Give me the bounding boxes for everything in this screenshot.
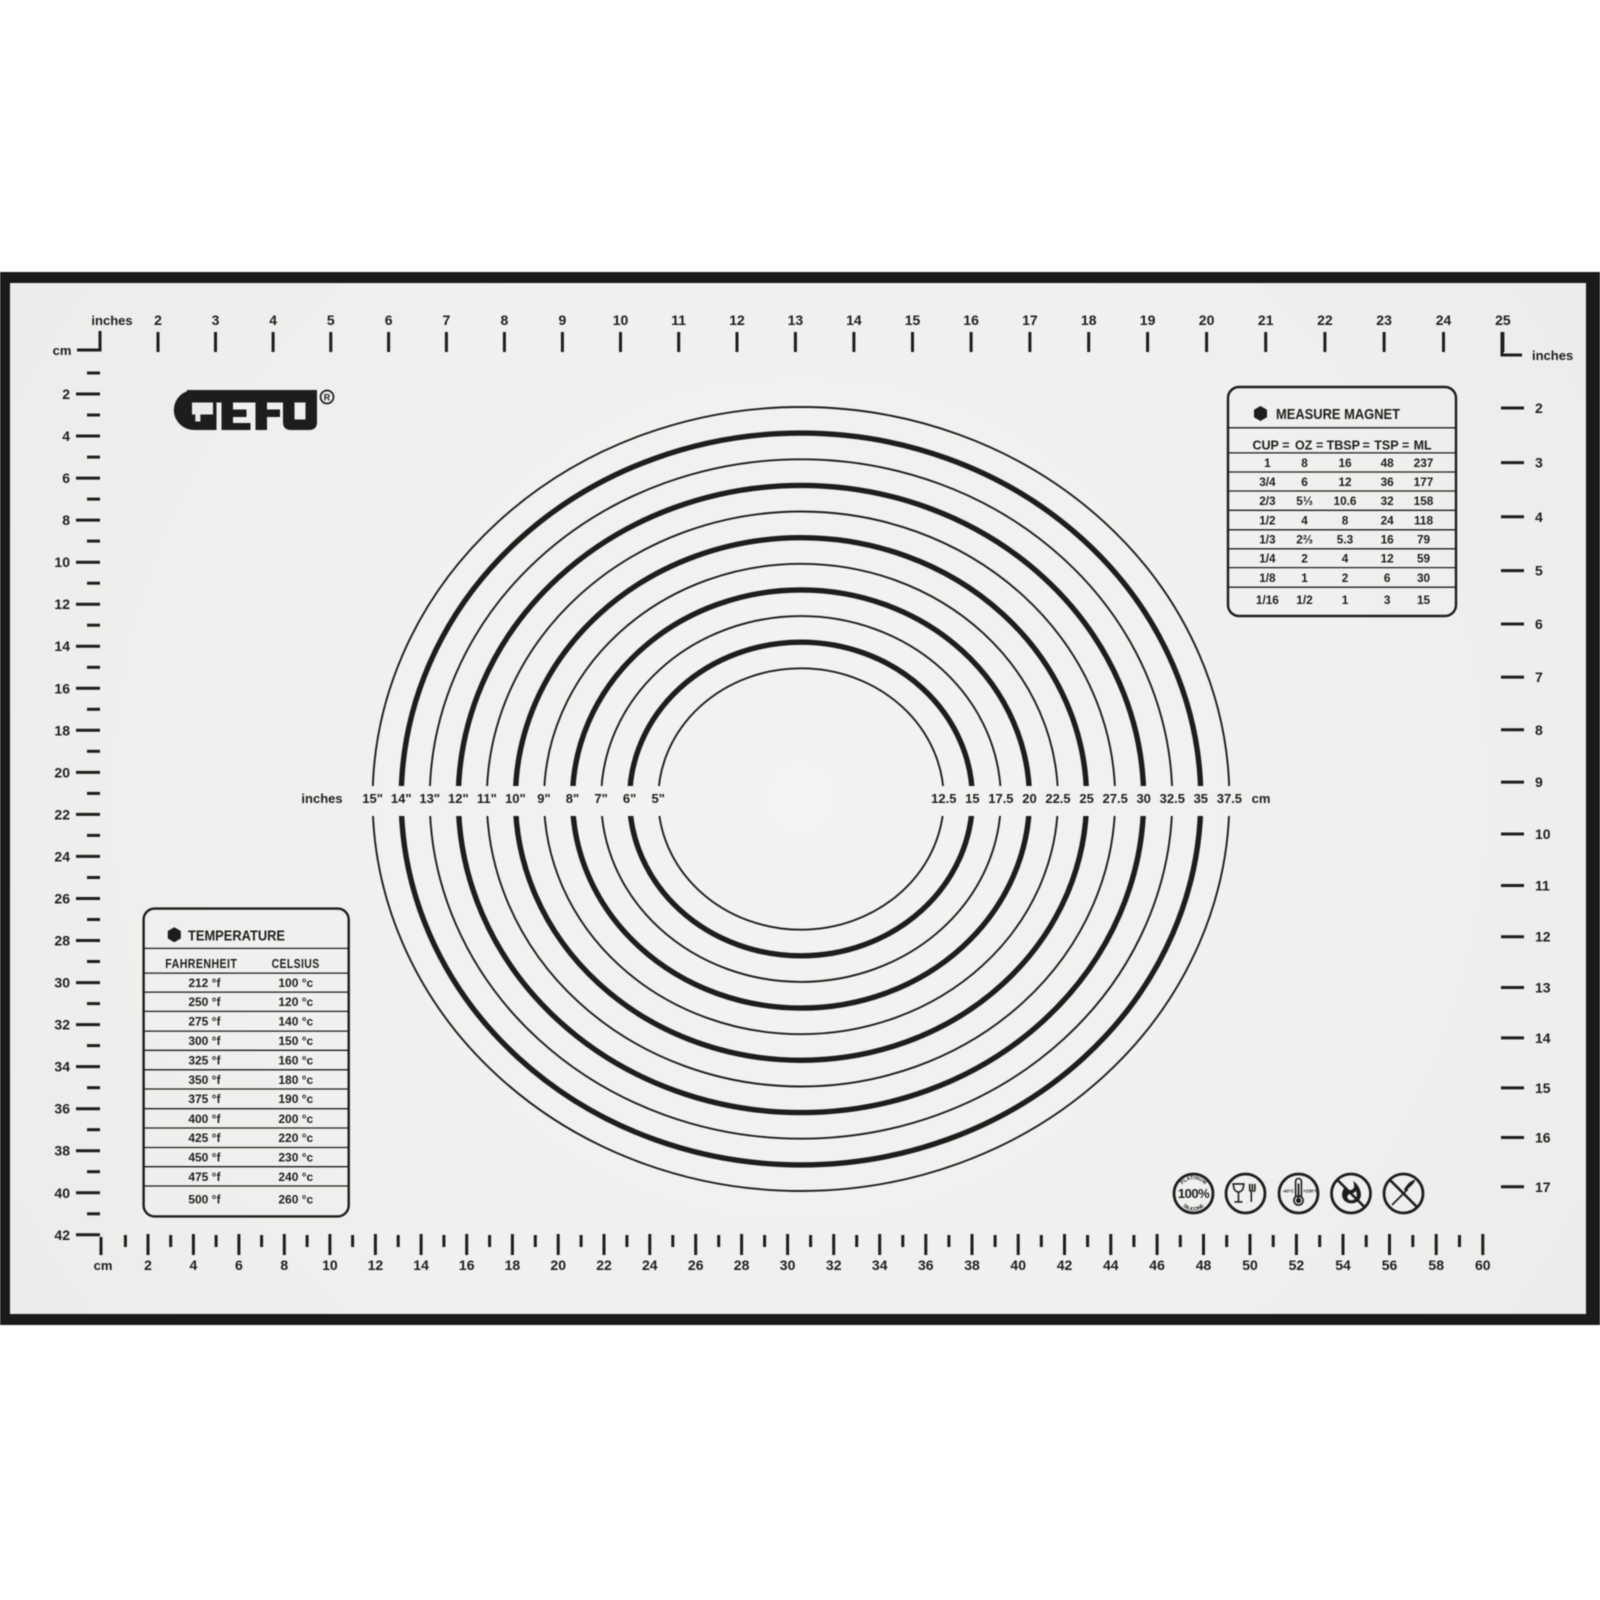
- svg-text:500 °f: 500 °f: [188, 1192, 221, 1206]
- svg-text:5": 5": [651, 791, 664, 806]
- svg-text:48: 48: [1196, 1257, 1212, 1273]
- svg-text:10: 10: [1535, 826, 1551, 842]
- svg-text:52: 52: [1289, 1257, 1305, 1273]
- svg-text:40: 40: [1010, 1257, 1026, 1273]
- svg-text:40: 40: [54, 1185, 70, 1201]
- svg-text:20: 20: [1199, 312, 1215, 328]
- svg-text:375 °f: 375 °f: [188, 1092, 221, 1106]
- svg-text:5: 5: [1535, 563, 1543, 579]
- svg-text:36: 36: [1381, 475, 1395, 489]
- svg-text:54: 54: [1335, 1257, 1351, 1273]
- svg-text:30: 30: [54, 975, 70, 991]
- svg-text:200 °c: 200 °c: [278, 1112, 313, 1126]
- svg-text:15: 15: [1417, 593, 1431, 607]
- svg-text:R: R: [324, 393, 331, 403]
- svg-text:23: 23: [1376, 312, 1392, 328]
- svg-text:13": 13": [419, 791, 440, 806]
- svg-text:=: =: [1402, 439, 1409, 453]
- svg-text:16: 16: [459, 1257, 475, 1273]
- svg-text:9: 9: [1535, 774, 1543, 790]
- svg-text:CELSIUS: CELSIUS: [272, 957, 320, 971]
- svg-text:6: 6: [1384, 571, 1391, 585]
- svg-text:1/16: 1/16: [1256, 593, 1279, 607]
- svg-text:14: 14: [413, 1257, 429, 1273]
- svg-text:10: 10: [613, 312, 629, 328]
- svg-text:10: 10: [54, 554, 70, 570]
- svg-text:212 °f: 212 °f: [188, 976, 221, 990]
- svg-text:32.5: 32.5: [1160, 791, 1185, 806]
- svg-text:10": 10": [505, 791, 526, 806]
- svg-text:450 °f: 450 °f: [188, 1151, 221, 1165]
- svg-text:10: 10: [322, 1257, 338, 1273]
- svg-text:120 °c: 120 °c: [278, 995, 313, 1009]
- svg-text:TEMPERATURE: TEMPERATURE: [188, 928, 285, 945]
- svg-text:8": 8": [566, 791, 579, 806]
- svg-text:20: 20: [1022, 791, 1036, 806]
- svg-text:CUP: CUP: [1252, 439, 1278, 453]
- svg-text:4: 4: [1535, 509, 1543, 525]
- svg-text:8: 8: [501, 312, 509, 328]
- svg-text:12: 12: [1535, 929, 1551, 945]
- svg-text:inches: inches: [301, 791, 342, 806]
- svg-text:OZ: OZ: [1295, 439, 1313, 453]
- svg-text:275 °f: 275 °f: [188, 1015, 221, 1029]
- svg-text:18: 18: [54, 722, 70, 738]
- svg-text:160 °c: 160 °c: [278, 1054, 313, 1068]
- svg-text:2: 2: [1342, 571, 1349, 585]
- svg-text:5⅓: 5⅓: [1296, 494, 1313, 508]
- svg-text:18: 18: [505, 1257, 521, 1273]
- svg-text:118: 118: [1414, 513, 1433, 527]
- svg-text:15: 15: [1535, 1080, 1551, 1096]
- svg-text:16: 16: [1338, 456, 1352, 470]
- svg-text:inches: inches: [1532, 348, 1573, 363]
- svg-text:TBSP: TBSP: [1327, 439, 1360, 453]
- svg-text:100%: 100%: [1178, 1186, 1210, 1201]
- svg-text:+230°C: +230°C: [1303, 1189, 1319, 1194]
- svg-text:14: 14: [1535, 1030, 1551, 1046]
- svg-text:3: 3: [1384, 593, 1391, 607]
- svg-text:1/4: 1/4: [1259, 552, 1276, 566]
- svg-text:2: 2: [144, 1257, 152, 1273]
- svg-text:158: 158: [1414, 494, 1434, 508]
- svg-text:-40°C: -40°C: [1282, 1189, 1294, 1194]
- svg-text:100 °c: 100 °c: [278, 976, 313, 990]
- svg-text:5: 5: [327, 312, 335, 328]
- svg-text:9": 9": [537, 791, 550, 806]
- svg-text:17: 17: [1535, 1179, 1551, 1195]
- svg-text:34: 34: [872, 1257, 888, 1273]
- svg-text:42: 42: [54, 1227, 70, 1243]
- svg-text:1/8: 1/8: [1259, 571, 1276, 585]
- svg-text:58: 58: [1428, 1257, 1444, 1273]
- svg-text:36: 36: [54, 1101, 70, 1117]
- svg-text:2: 2: [62, 386, 70, 402]
- svg-text:56: 56: [1382, 1257, 1398, 1273]
- svg-text:TSP: TSP: [1374, 439, 1398, 453]
- svg-text:1/2: 1/2: [1296, 593, 1313, 607]
- svg-text:250 °f: 250 °f: [188, 995, 221, 1009]
- svg-text:32: 32: [826, 1257, 842, 1273]
- svg-text:190 °c: 190 °c: [278, 1092, 313, 1106]
- svg-text:350 °f: 350 °f: [188, 1073, 221, 1087]
- svg-text:12.5: 12.5: [931, 791, 956, 806]
- svg-text:50: 50: [1242, 1257, 1258, 1273]
- svg-text:60: 60: [1475, 1257, 1491, 1273]
- svg-text:6: 6: [235, 1257, 243, 1273]
- svg-text:6: 6: [385, 312, 393, 328]
- svg-text:4: 4: [62, 428, 70, 444]
- svg-text:30: 30: [780, 1257, 796, 1273]
- svg-text:42: 42: [1057, 1257, 1073, 1273]
- svg-text:cm: cm: [53, 343, 72, 358]
- svg-text:7: 7: [443, 312, 451, 328]
- svg-text:12: 12: [54, 596, 70, 612]
- svg-text:20: 20: [54, 764, 70, 780]
- svg-text:325 °f: 325 °f: [188, 1054, 221, 1068]
- svg-text:24: 24: [1436, 312, 1452, 328]
- svg-text:8: 8: [1301, 456, 1308, 470]
- svg-text:475 °f: 475 °f: [188, 1170, 221, 1184]
- svg-text:38: 38: [964, 1257, 980, 1273]
- svg-text:1: 1: [1342, 593, 1349, 607]
- svg-text:26: 26: [54, 891, 70, 907]
- svg-text:28: 28: [54, 933, 70, 949]
- svg-text:8: 8: [1535, 722, 1543, 738]
- svg-text:4: 4: [1301, 513, 1308, 527]
- svg-text:22: 22: [54, 806, 70, 822]
- svg-text:34: 34: [54, 1059, 70, 1075]
- svg-text:1/3: 1/3: [1259, 533, 1276, 547]
- svg-text:25: 25: [1079, 791, 1093, 806]
- svg-text:260 °c: 260 °c: [278, 1192, 313, 1206]
- svg-text:240 °c: 240 °c: [278, 1170, 313, 1184]
- svg-text:5.3: 5.3: [1337, 533, 1354, 547]
- svg-text:6": 6": [623, 791, 636, 806]
- svg-text:11: 11: [1535, 878, 1550, 894]
- svg-text:cm: cm: [94, 1258, 113, 1273]
- svg-text:18: 18: [1081, 312, 1097, 328]
- svg-text:6: 6: [62, 470, 70, 486]
- svg-text:237: 237: [1414, 456, 1434, 470]
- svg-text:9: 9: [559, 312, 567, 328]
- svg-text:8: 8: [1342, 513, 1349, 527]
- svg-text:2: 2: [1535, 400, 1543, 416]
- svg-text:16: 16: [1381, 533, 1395, 547]
- svg-text:24: 24: [642, 1257, 658, 1273]
- svg-text:22: 22: [1317, 312, 1333, 328]
- svg-text:13: 13: [788, 312, 804, 328]
- svg-text:15: 15: [965, 791, 979, 806]
- svg-text:26: 26: [688, 1257, 704, 1273]
- svg-text:3: 3: [212, 312, 220, 328]
- svg-text:12: 12: [368, 1257, 384, 1273]
- svg-text:3/4: 3/4: [1259, 475, 1276, 489]
- svg-text:400 °f: 400 °f: [188, 1112, 221, 1126]
- svg-text:17.5: 17.5: [988, 791, 1013, 806]
- svg-text:1: 1: [1301, 571, 1308, 585]
- svg-text:4: 4: [1342, 552, 1349, 566]
- svg-text:2/3: 2/3: [1259, 494, 1276, 508]
- svg-text:1/2: 1/2: [1259, 513, 1276, 527]
- svg-text:cm: cm: [1252, 791, 1271, 806]
- svg-text:35: 35: [1194, 791, 1208, 806]
- svg-text:19: 19: [1140, 312, 1156, 328]
- svg-text:MEASURE MAGNET: MEASURE MAGNET: [1276, 406, 1400, 423]
- svg-text:17: 17: [1022, 312, 1038, 328]
- svg-text:14": 14": [391, 791, 412, 806]
- svg-text:20: 20: [550, 1257, 566, 1273]
- svg-text:2: 2: [154, 312, 162, 328]
- svg-text:21: 21: [1258, 312, 1274, 328]
- svg-text:15": 15": [362, 791, 383, 806]
- svg-text:FAHRENHEIT: FAHRENHEIT: [165, 957, 237, 971]
- svg-text:230 °c: 230 °c: [278, 1151, 313, 1165]
- svg-text:2⅔: 2⅔: [1296, 533, 1313, 547]
- svg-text:28: 28: [734, 1257, 750, 1273]
- svg-text:425 °f: 425 °f: [188, 1131, 221, 1145]
- svg-text:3: 3: [1535, 455, 1543, 471]
- svg-text:32: 32: [1381, 494, 1395, 508]
- svg-text:10.6: 10.6: [1334, 494, 1357, 508]
- svg-text:16: 16: [54, 680, 70, 696]
- svg-text:177: 177: [1414, 475, 1434, 489]
- svg-text:30: 30: [1136, 791, 1150, 806]
- svg-text:6: 6: [1535, 616, 1543, 632]
- svg-text:150 °c: 150 °c: [278, 1034, 313, 1048]
- svg-text:7": 7": [594, 791, 607, 806]
- svg-text:=: =: [1282, 439, 1289, 453]
- svg-text:22.5: 22.5: [1045, 791, 1070, 806]
- svg-text:1: 1: [1264, 456, 1271, 470]
- svg-text:24: 24: [54, 848, 70, 864]
- svg-text:12: 12: [729, 312, 745, 328]
- svg-text:79: 79: [1417, 533, 1431, 547]
- svg-text:59: 59: [1417, 552, 1431, 566]
- svg-text:38: 38: [54, 1143, 70, 1159]
- svg-text:11": 11": [477, 791, 497, 806]
- svg-text:37.5: 37.5: [1217, 791, 1242, 806]
- svg-text:=: =: [1316, 439, 1323, 453]
- svg-text:24: 24: [1381, 513, 1395, 527]
- svg-text:32: 32: [54, 1017, 70, 1033]
- svg-text:48: 48: [1381, 456, 1395, 470]
- svg-text:300 °f: 300 °f: [188, 1034, 221, 1048]
- svg-text:13: 13: [1535, 980, 1551, 996]
- svg-text:8: 8: [62, 512, 70, 528]
- svg-text:36: 36: [918, 1257, 934, 1273]
- svg-text:2: 2: [1301, 552, 1308, 566]
- svg-text:6: 6: [1301, 475, 1308, 489]
- svg-text:11: 11: [671, 312, 686, 328]
- svg-text:30: 30: [1417, 571, 1431, 585]
- svg-text:ML: ML: [1414, 439, 1432, 453]
- svg-text:7: 7: [1535, 669, 1543, 685]
- svg-text:25: 25: [1495, 312, 1511, 328]
- svg-text:180 °c: 180 °c: [278, 1073, 313, 1087]
- svg-text:4: 4: [269, 312, 277, 328]
- svg-text:12: 12: [1338, 475, 1352, 489]
- svg-text:14: 14: [846, 312, 862, 328]
- svg-text:220 °c: 220 °c: [278, 1131, 313, 1145]
- svg-text:46: 46: [1149, 1257, 1165, 1273]
- svg-text:16: 16: [1535, 1130, 1551, 1146]
- svg-text:4: 4: [190, 1257, 198, 1273]
- svg-text:=: =: [1362, 439, 1369, 453]
- svg-text:12: 12: [1381, 552, 1395, 566]
- svg-text:15: 15: [905, 312, 921, 328]
- svg-text:27.5: 27.5: [1103, 791, 1128, 806]
- svg-text:inches: inches: [91, 313, 132, 328]
- svg-text:22: 22: [596, 1257, 612, 1273]
- svg-text:44: 44: [1103, 1257, 1119, 1273]
- svg-text:16: 16: [963, 312, 979, 328]
- svg-text:140 °c: 140 °c: [278, 1015, 313, 1029]
- svg-text:14: 14: [54, 638, 70, 654]
- svg-text:12": 12": [448, 791, 469, 806]
- svg-text:8: 8: [280, 1257, 288, 1273]
